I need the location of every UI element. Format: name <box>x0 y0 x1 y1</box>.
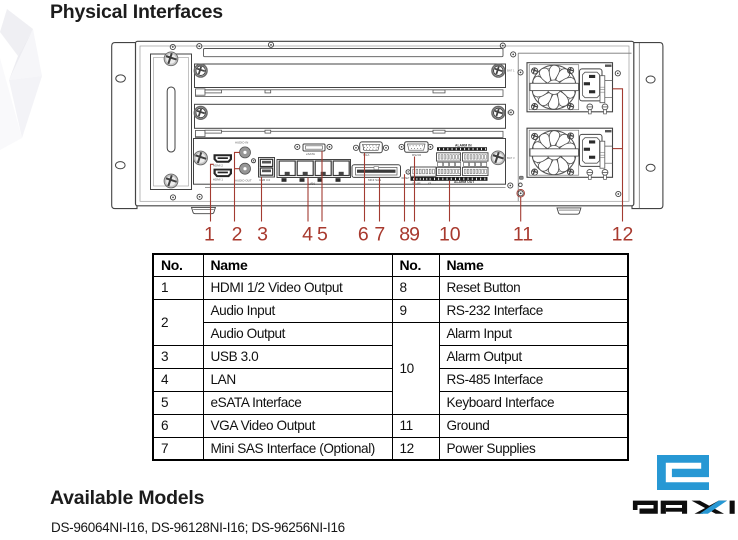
svg-text:1: 1 <box>204 224 215 246</box>
svg-text:7: 7 <box>374 224 385 246</box>
svg-text:BAT 2: BAT 2 <box>507 111 515 115</box>
svg-text:HDMI 2: HDMI 2 <box>213 163 223 167</box>
svg-text:11: 11 <box>513 224 533 246</box>
svg-text:ALARM OUT: ALARM OUT <box>454 180 475 184</box>
svg-text:2: 2 <box>232 224 243 246</box>
svg-text:BAT 1: BAT 1 <box>507 69 515 73</box>
svg-text:10: 10 <box>439 224 461 246</box>
svg-text:ALARM IN: ALARM IN <box>455 143 472 147</box>
svg-text:3: 3 <box>257 224 268 246</box>
svg-text:HDMI 1: HDMI 1 <box>213 178 223 182</box>
svg-text:RS-485: RS-485 <box>413 182 422 185</box>
svg-text:KB: KB <box>428 182 432 185</box>
svg-text:AUDIO IN: AUDIO IN <box>235 141 248 145</box>
svg-text:AUDIO OUT: AUDIO OUT <box>235 179 252 183</box>
svg-text:4: 4 <box>302 224 313 246</box>
svg-text:9: 9 <box>409 224 420 246</box>
svg-text:LAN: LAN <box>308 182 315 186</box>
svg-text:eSATA: eSATA <box>306 152 315 156</box>
svg-text:BAT 3: BAT 3 <box>507 156 515 160</box>
svg-text:USB 3.0: USB 3.0 <box>259 178 271 182</box>
svg-text:5: 5 <box>317 224 328 246</box>
svg-text:12: 12 <box>612 224 634 246</box>
svg-text:RESET: RESET <box>402 177 411 180</box>
svg-text:RS232: RS232 <box>412 153 422 157</box>
svg-text:6: 6 <box>358 224 369 246</box>
